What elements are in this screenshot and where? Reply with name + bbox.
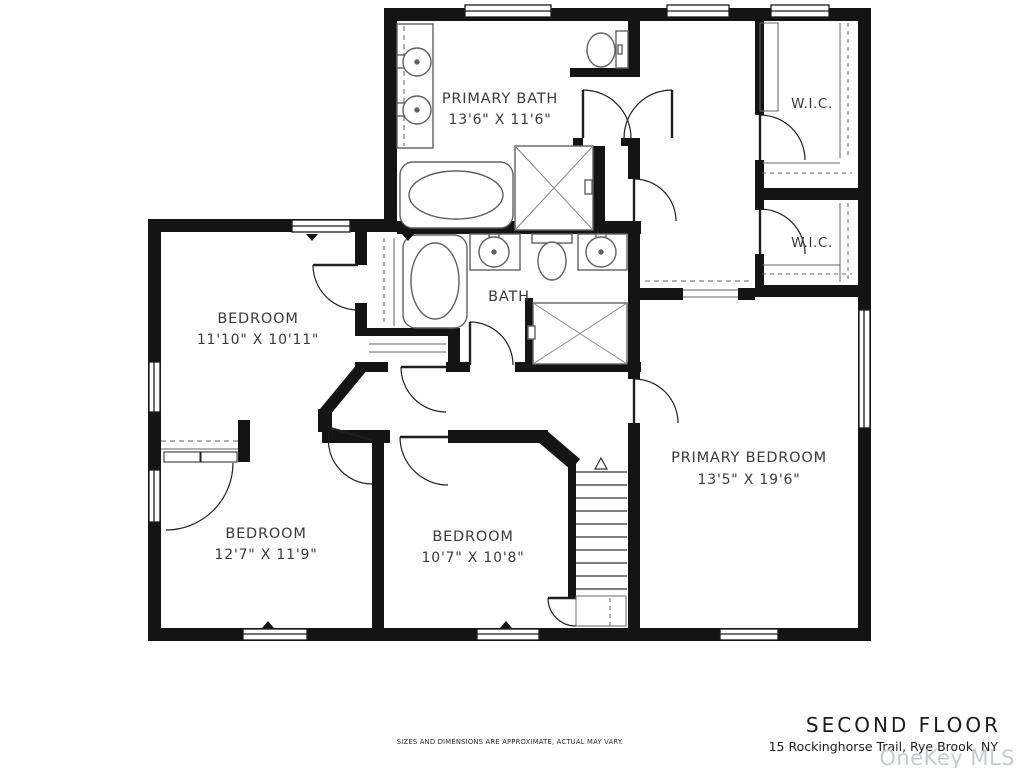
primary-bedroom-label: PRIMARY BEDROOM	[671, 450, 827, 466]
bedroom-lower-left-label: BEDROOM	[225, 526, 306, 542]
window	[771, 5, 829, 17]
size-disclaimer: SIZES AND DIMENSIONS ARE APPROXIMATE, AC…	[335, 738, 685, 746]
door-primary-bath-left-leaf	[583, 90, 631, 138]
floor-title: SECOND FLOOR	[806, 713, 1001, 737]
window	[720, 629, 778, 640]
door-primary-bedroom	[634, 379, 678, 423]
door-wic-top	[760, 115, 805, 160]
wic-top-label: W.I.C.	[791, 96, 833, 112]
bedroom-lower-middle-label: BEDROOM	[432, 529, 513, 545]
bathtub-icon	[400, 162, 513, 228]
floorplan-page: PRIMARY BATH 13'6" X 11'6" W.I.C. W.I.C.…	[0, 0, 1024, 768]
toilet-icon	[587, 31, 628, 68]
floorplan-canvas: PRIMARY BATH 13'6" X 11'6" W.I.C. W.I.C.…	[0, 0, 1024, 768]
bathtub-icon	[403, 235, 467, 328]
bedroom-lower-middle-dims: 10'7" X 10'8"	[422, 550, 525, 566]
window	[149, 362, 160, 412]
stairs-up-arrow-icon	[595, 458, 607, 469]
window	[243, 629, 307, 640]
primary-bedroom-dims: 13'5" X 19'6"	[698, 472, 801, 488]
window	[465, 5, 551, 17]
bedroom-upper-left-label: BEDROOM	[217, 311, 298, 327]
shower-icon	[528, 303, 627, 364]
window	[477, 629, 539, 640]
toilet-icon	[532, 234, 572, 280]
primary-bath-dims: 13'6" X 11'6"	[449, 112, 552, 128]
door-hallway	[634, 179, 676, 221]
window	[859, 310, 870, 428]
window	[667, 5, 729, 17]
primary-bath-label: PRIMARY BATH	[442, 91, 558, 107]
door-bedroom-upper-left	[313, 265, 358, 310]
door-bedroom-lower-left-closet	[166, 463, 233, 530]
wic-bottom-label: W.I.C.	[791, 235, 833, 251]
mls-watermark: OneKey MLS	[879, 746, 1015, 768]
staircase	[576, 458, 627, 589]
door-primary-bath-right-leaf	[624, 90, 672, 138]
bath-label: BATH	[488, 289, 530, 305]
window	[149, 470, 160, 522]
sink-vanity	[470, 234, 520, 270]
bedroom-upper-left-dims: 11'10" X 10'11"	[197, 332, 319, 348]
sink-vanity	[578, 234, 627, 270]
bedroom-lower-left-dims: 12'7" X 11'9"	[215, 547, 318, 563]
primary-bath-vanity	[397, 24, 433, 148]
window	[292, 220, 350, 232]
door-stairs-closet	[548, 598, 576, 626]
door-hall-closet	[401, 367, 446, 412]
door-bedroom-lower-middle	[400, 437, 448, 485]
door-bath	[470, 322, 513, 365]
shower-icon	[515, 146, 593, 230]
